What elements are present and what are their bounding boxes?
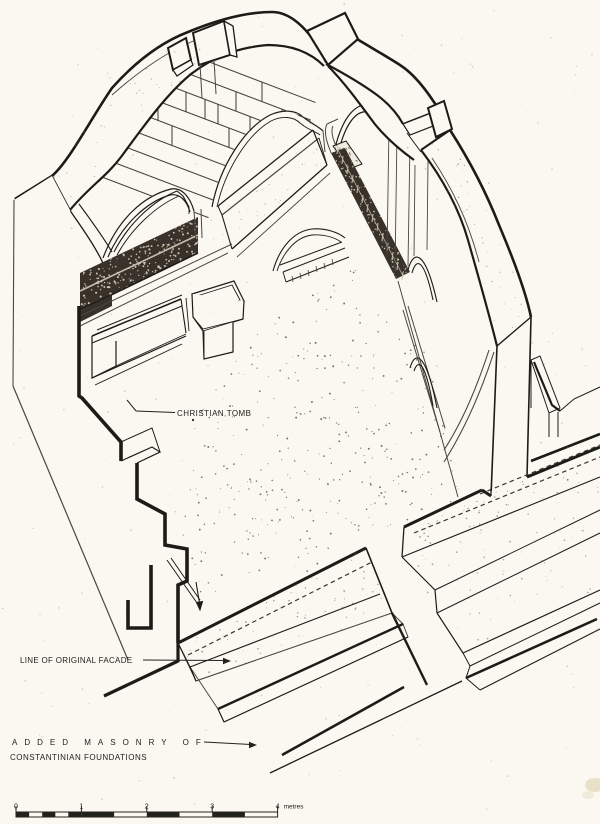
svg-text:metres: metres xyxy=(284,804,305,811)
svg-text:ADDED MASONRY OF: ADDED MASONRY OF xyxy=(12,738,208,747)
svg-text:2: 2 xyxy=(145,804,149,811)
svg-text:LINE OF ORIGINAL FACADE: LINE OF ORIGINAL FACADE xyxy=(20,656,132,665)
svg-text:4: 4 xyxy=(276,804,280,811)
svg-text:3: 3 xyxy=(210,804,214,811)
svg-text:CONSTANTINIAN FOUNDATIONS: CONSTANTINIAN FOUNDATIONS xyxy=(10,753,147,762)
svg-text:1: 1 xyxy=(79,804,83,811)
svg-text:0: 0 xyxy=(14,804,18,811)
svg-text:CHRISTIAN TOMB: CHRISTIAN TOMB xyxy=(177,409,251,418)
